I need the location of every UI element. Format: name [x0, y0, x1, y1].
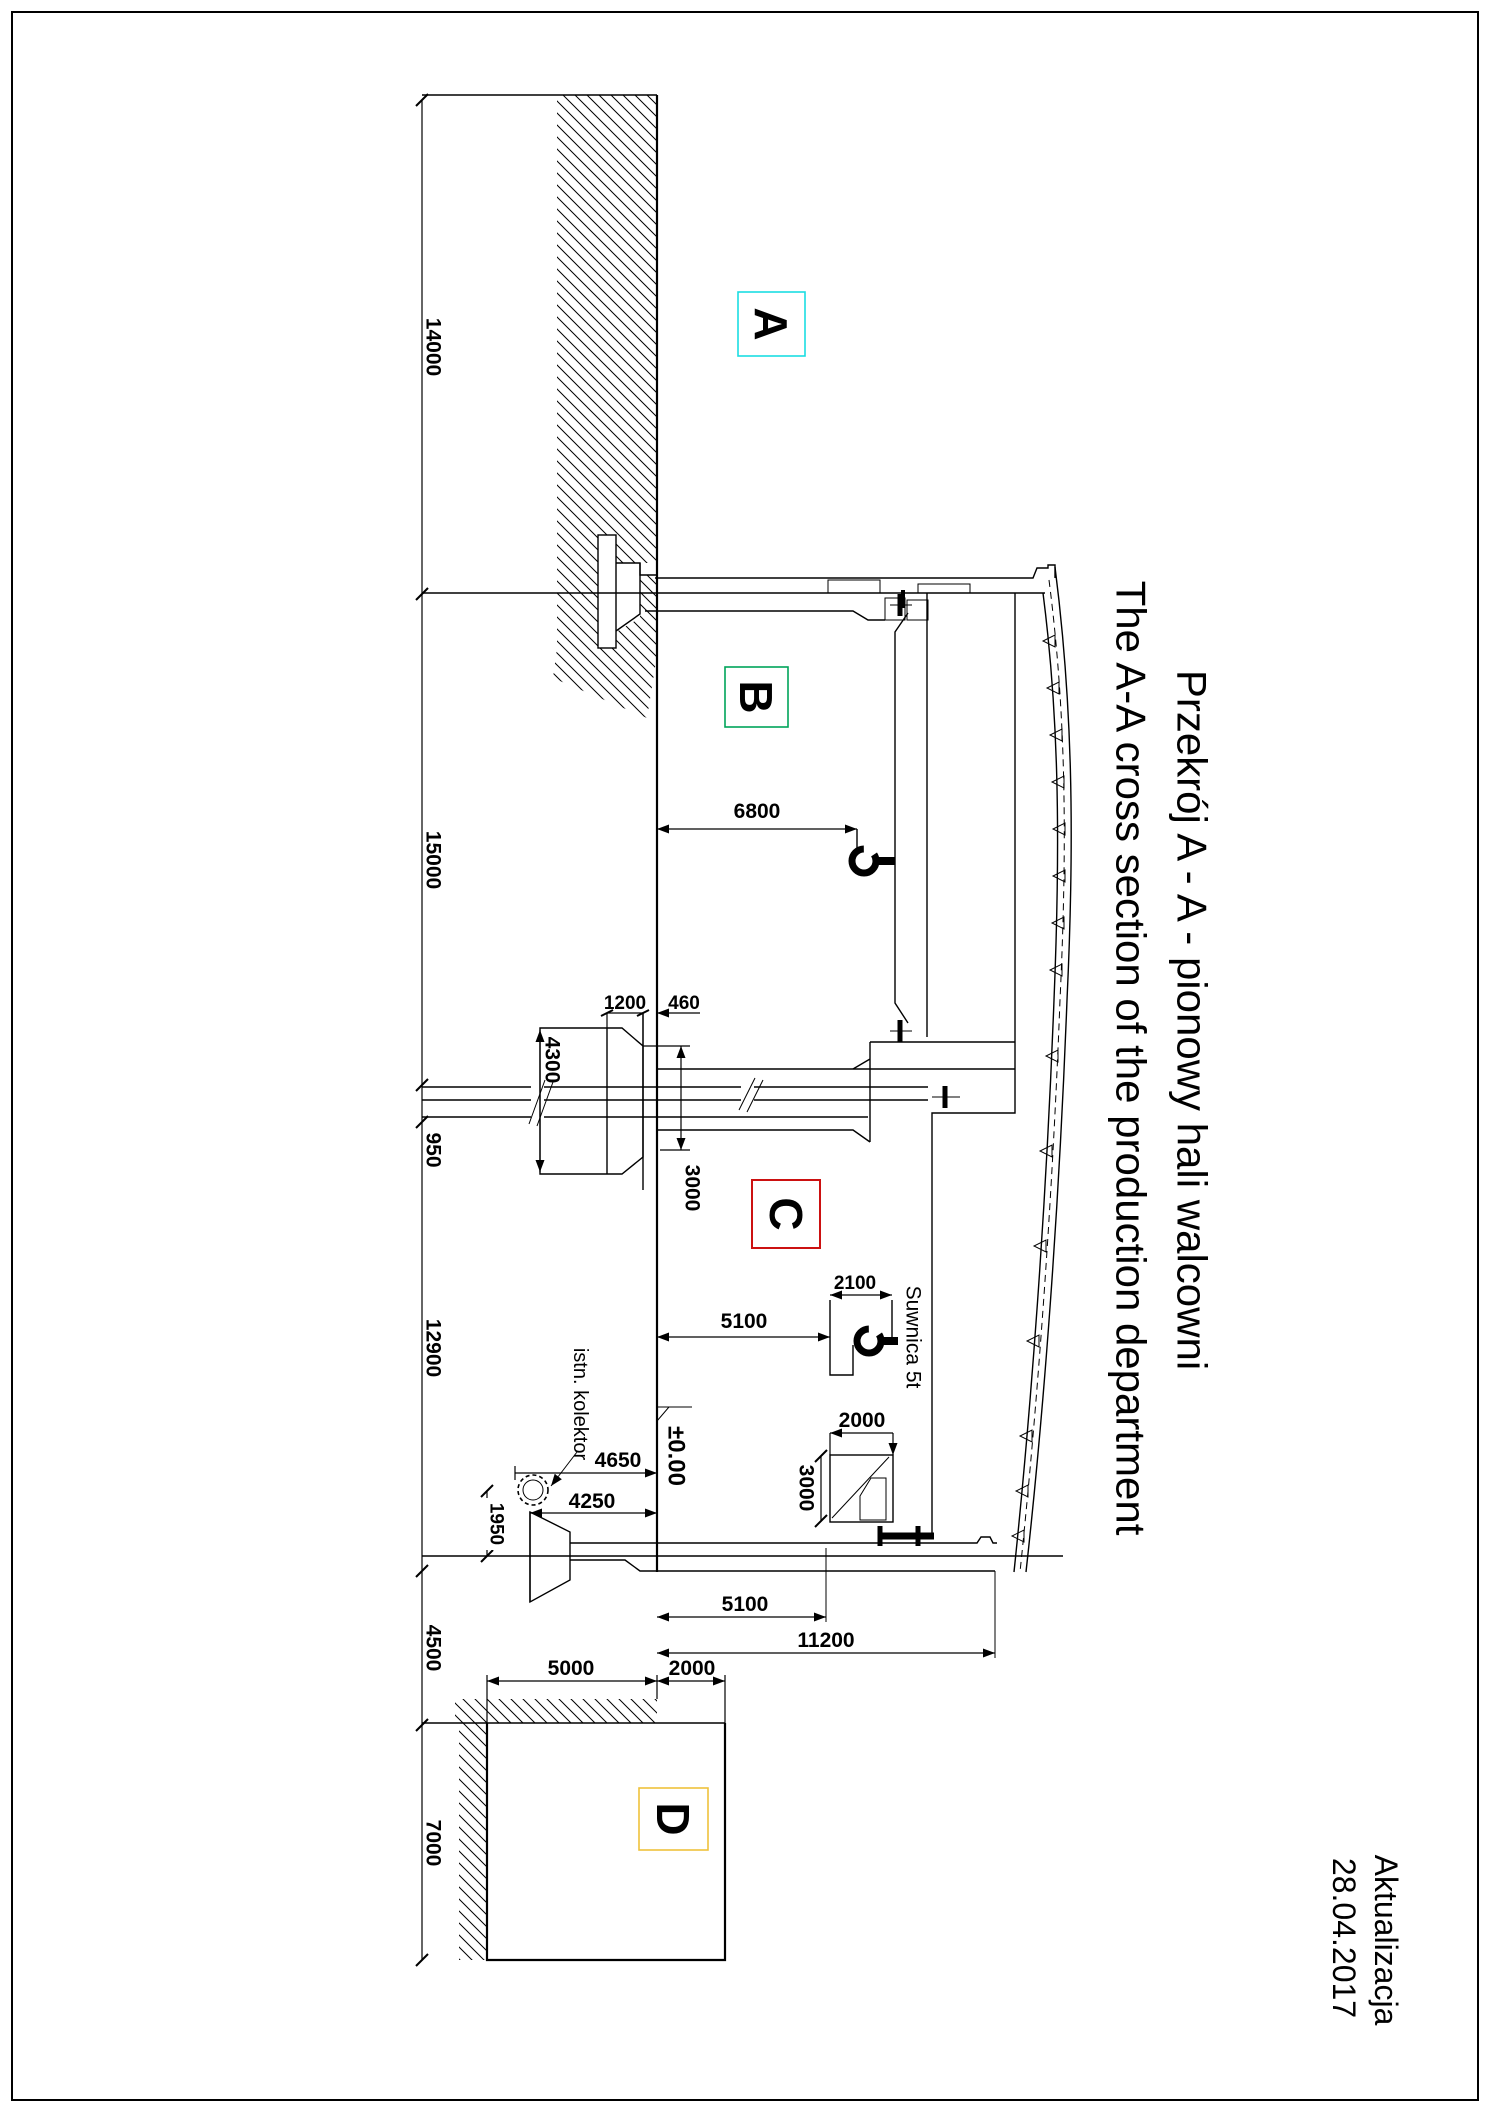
- crane-rails: [422, 1078, 928, 1126]
- dim-6800: 6800: [734, 800, 781, 823]
- level-mark: [657, 1407, 692, 1421]
- dim-7000: 7000: [422, 1820, 445, 1867]
- dim-1200: 1200: [604, 993, 646, 1014]
- roof-girder: [890, 593, 927, 1042]
- dim-3000b: 3000: [795, 1465, 818, 1512]
- dim-15000: 15000: [422, 831, 445, 889]
- dim-4650: 4650: [595, 1449, 642, 1472]
- zone-labels: A B C D: [639, 292, 820, 1850]
- note-collector: istn. kolektor: [569, 1348, 591, 1461]
- crane-trolley-lower: [830, 1300, 898, 1375]
- dim-2100: 2100: [834, 1273, 876, 1294]
- interior-dimensions: 6800 4300 1200 460 3000 5100 2100 2000 3…: [481, 800, 995, 1723]
- dim-3000a: 3000: [681, 1165, 704, 1212]
- crane-hook-upper: [852, 829, 895, 873]
- floor-lines: [422, 1512, 1063, 1602]
- zone-b-label: B: [730, 680, 782, 713]
- titles: Przekrój A - A - pionowy hali walcowni T…: [1108, 581, 1216, 1536]
- structure-lines: [422, 95, 1071, 1960]
- zone-c-label: C: [760, 1197, 812, 1230]
- dim-4500: 4500: [422, 1625, 445, 1672]
- dim-2000b: 2000: [669, 1657, 716, 1680]
- dim-11200: 11200: [797, 1629, 854, 1652]
- dim-4300: 4300: [541, 1037, 564, 1084]
- cad-canvas: 14000 15000 950 12900 4500 7000 6800 430…: [0, 0, 1497, 2117]
- update-note: Aktualizacja 28.04.2017: [1326, 1855, 1404, 2026]
- dim-950: 950: [422, 1132, 445, 1167]
- update-label: Aktualizacja: [1368, 1855, 1404, 2026]
- basement-pit: [422, 1548, 995, 1960]
- dim-12900: 12900: [422, 1319, 445, 1377]
- zone-a-label: A: [745, 307, 797, 340]
- dim-14000: 14000: [422, 318, 445, 376]
- dimension-chain: 14000 15000 950 12900 4500 7000: [416, 94, 445, 1966]
- title-en: The A-A cross section of the production …: [1108, 581, 1155, 1536]
- dim-1950: 1950: [486, 1503, 507, 1545]
- zone-d-label: D: [647, 1802, 699, 1835]
- ground-hatch: [553, 95, 657, 718]
- tall-hall-wall: [657, 593, 1015, 1538]
- drawing-sheet: 14000 15000 950 12900 4500 7000 6800 430…: [0, 0, 1497, 2117]
- dim-5100b: 5100: [722, 1593, 769, 1616]
- note-level: ±0.00: [663, 1426, 690, 1486]
- dim-2000a: 2000: [839, 1409, 886, 1432]
- dim-4250: 4250: [569, 1490, 616, 1513]
- dim-5000: 5000: [548, 1657, 595, 1680]
- sheet-border: [12, 12, 1478, 2100]
- title-pl: Przekrój A - A - pionowy hali walcowni: [1169, 670, 1216, 1370]
- roof-truss: [1012, 567, 1071, 1572]
- roof-band: [422, 565, 1055, 620]
- dim-460: 460: [668, 993, 700, 1014]
- note-crane: Suwnica 5t: [902, 1286, 925, 1389]
- crane-cabin: [830, 1455, 934, 1546]
- dim-5100a: 5100: [721, 1310, 768, 1333]
- update-date: 28.04.2017: [1326, 1858, 1362, 2018]
